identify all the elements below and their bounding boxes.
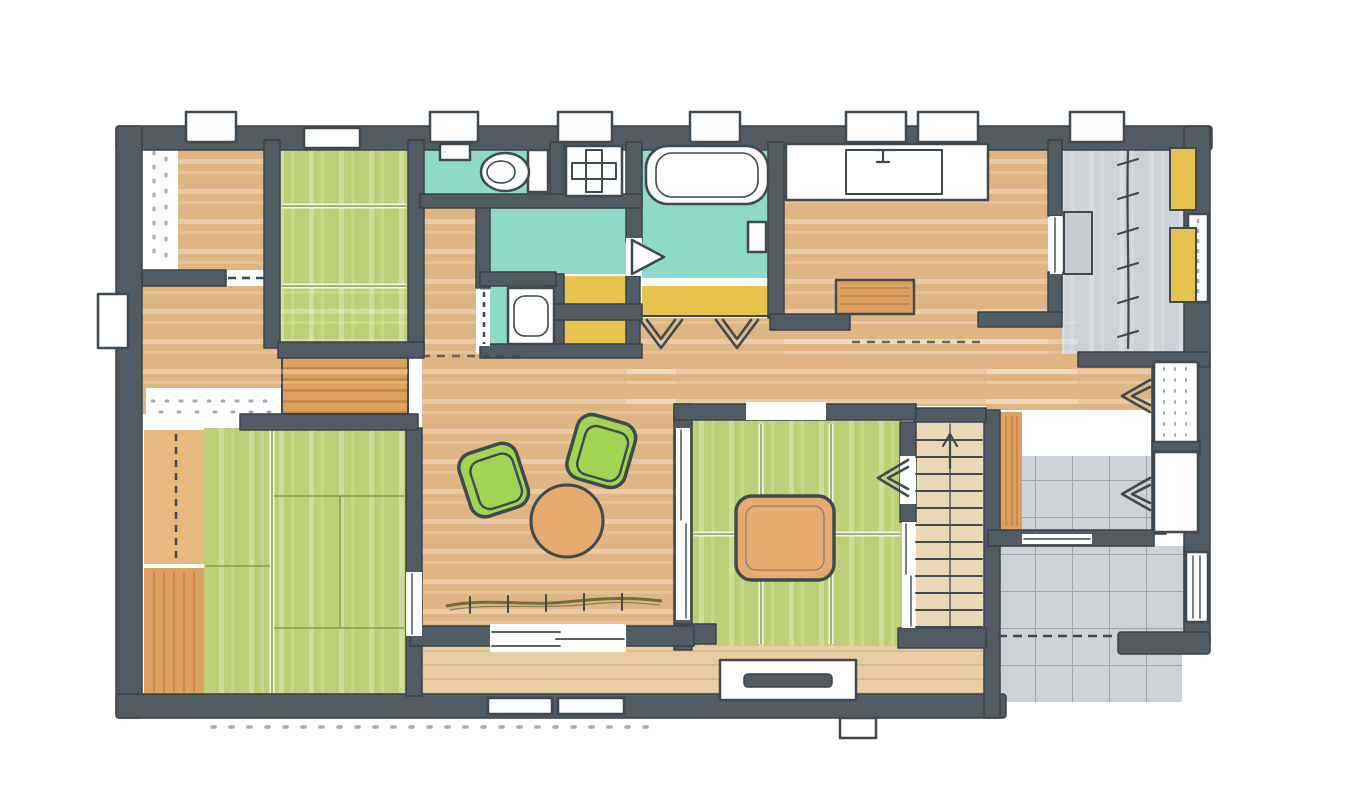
window-box-left: [98, 294, 128, 348]
window-box: [1070, 112, 1124, 142]
window-box: [430, 112, 478, 142]
kitchen-island: [836, 280, 914, 314]
hanger-pipe: [1127, 150, 1128, 348]
wall: [406, 428, 422, 696]
wall: [552, 304, 642, 320]
bedroom-nw-closet-strip: [144, 142, 178, 270]
bath-seat: [748, 222, 766, 252]
front-door: [1186, 552, 1208, 622]
bathtub: [646, 146, 768, 204]
washing-machine-pan: [566, 146, 622, 196]
yellow-closet-mat-b: [564, 320, 626, 346]
genkan-grid: [998, 546, 1186, 638]
wall: [978, 312, 1062, 327]
wall: [770, 314, 850, 330]
wall: [142, 270, 226, 286]
window-box: [690, 112, 740, 142]
washroom-floor: [476, 208, 626, 274]
wall: [550, 142, 564, 200]
wall: [240, 414, 418, 430]
wall: [898, 628, 986, 648]
window-box: [558, 112, 612, 142]
flush-window: [304, 128, 360, 148]
window-box: [846, 112, 906, 142]
bedroom-sw-tatami-floor: [204, 428, 406, 696]
bedroom-nw-floor: [178, 142, 266, 270]
step-stone: [840, 718, 876, 738]
yellow-closet-mat-a: [564, 276, 626, 304]
wall: [914, 408, 986, 422]
storage-box: [1064, 212, 1092, 274]
wall: [278, 342, 424, 358]
bedroom-north-green-floor: [280, 140, 408, 344]
window-box: [186, 112, 236, 142]
flush-window: [488, 698, 552, 714]
corridor-floor: [424, 200, 476, 356]
wood-deck-texture: [282, 356, 408, 414]
wall: [410, 626, 492, 646]
outer-wall-left: [116, 126, 142, 718]
window-box: [918, 112, 978, 142]
wall: [264, 140, 280, 348]
wall: [984, 410, 1000, 718]
flush-window: [558, 698, 624, 714]
wall: [624, 626, 694, 646]
vanity-sink: [508, 288, 554, 344]
kotatsu-table: [736, 496, 834, 580]
tv-board: [720, 660, 856, 700]
wall: [1048, 272, 1062, 314]
wall: [768, 142, 784, 318]
wall: [408, 140, 424, 354]
floor-plan-drawing: Hand-drawn marker sketch floor plan of a…: [0, 0, 1358, 808]
porch-wall-stub: [1118, 632, 1210, 654]
storage-shelf: [1170, 228, 1196, 302]
round-table: [531, 485, 603, 557]
yellow-closet-strip-bath: [642, 286, 768, 316]
kitchen-counter: [786, 144, 988, 200]
floor-plan-canvas: Hand-drawn marker sketch floor plan of a…: [0, 0, 1358, 808]
wall: [626, 142, 642, 242]
wall: [480, 272, 556, 286]
bedroom-sw-closet-upper: [144, 430, 204, 564]
wall: [1048, 140, 1062, 216]
storage-shelf: [1170, 148, 1196, 210]
